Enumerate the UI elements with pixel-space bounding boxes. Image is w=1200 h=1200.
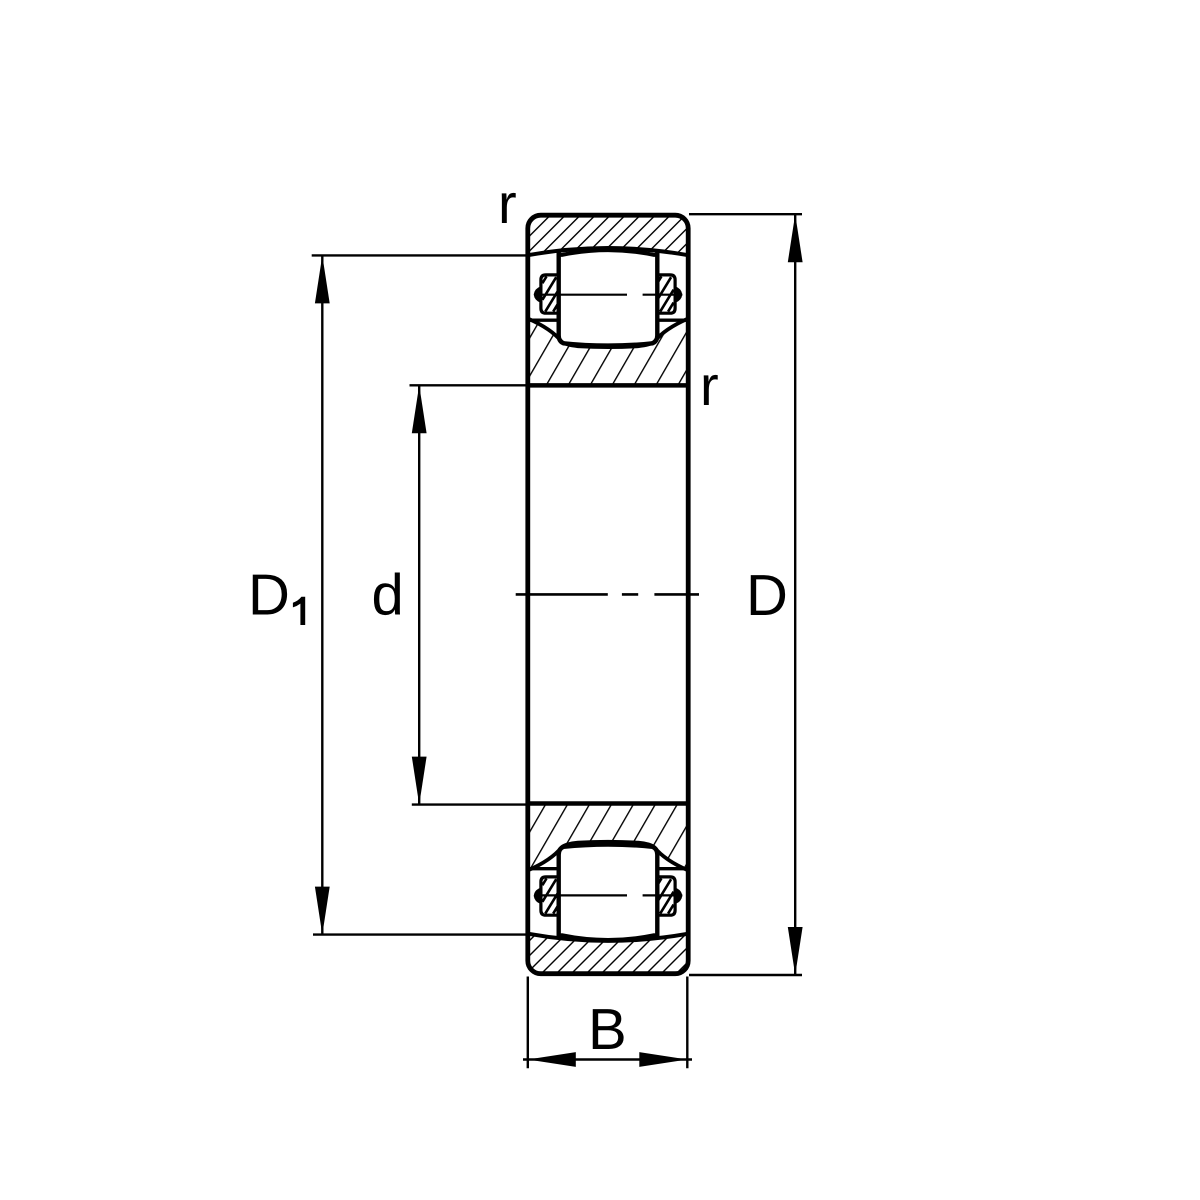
svg-text:r: r bbox=[498, 172, 517, 235]
svg-text:d: d bbox=[372, 563, 404, 628]
svg-text:D: D bbox=[746, 563, 788, 628]
svg-text:D: D bbox=[248, 563, 290, 628]
svg-text:r: r bbox=[700, 354, 719, 417]
svg-text:B: B bbox=[588, 997, 627, 1062]
